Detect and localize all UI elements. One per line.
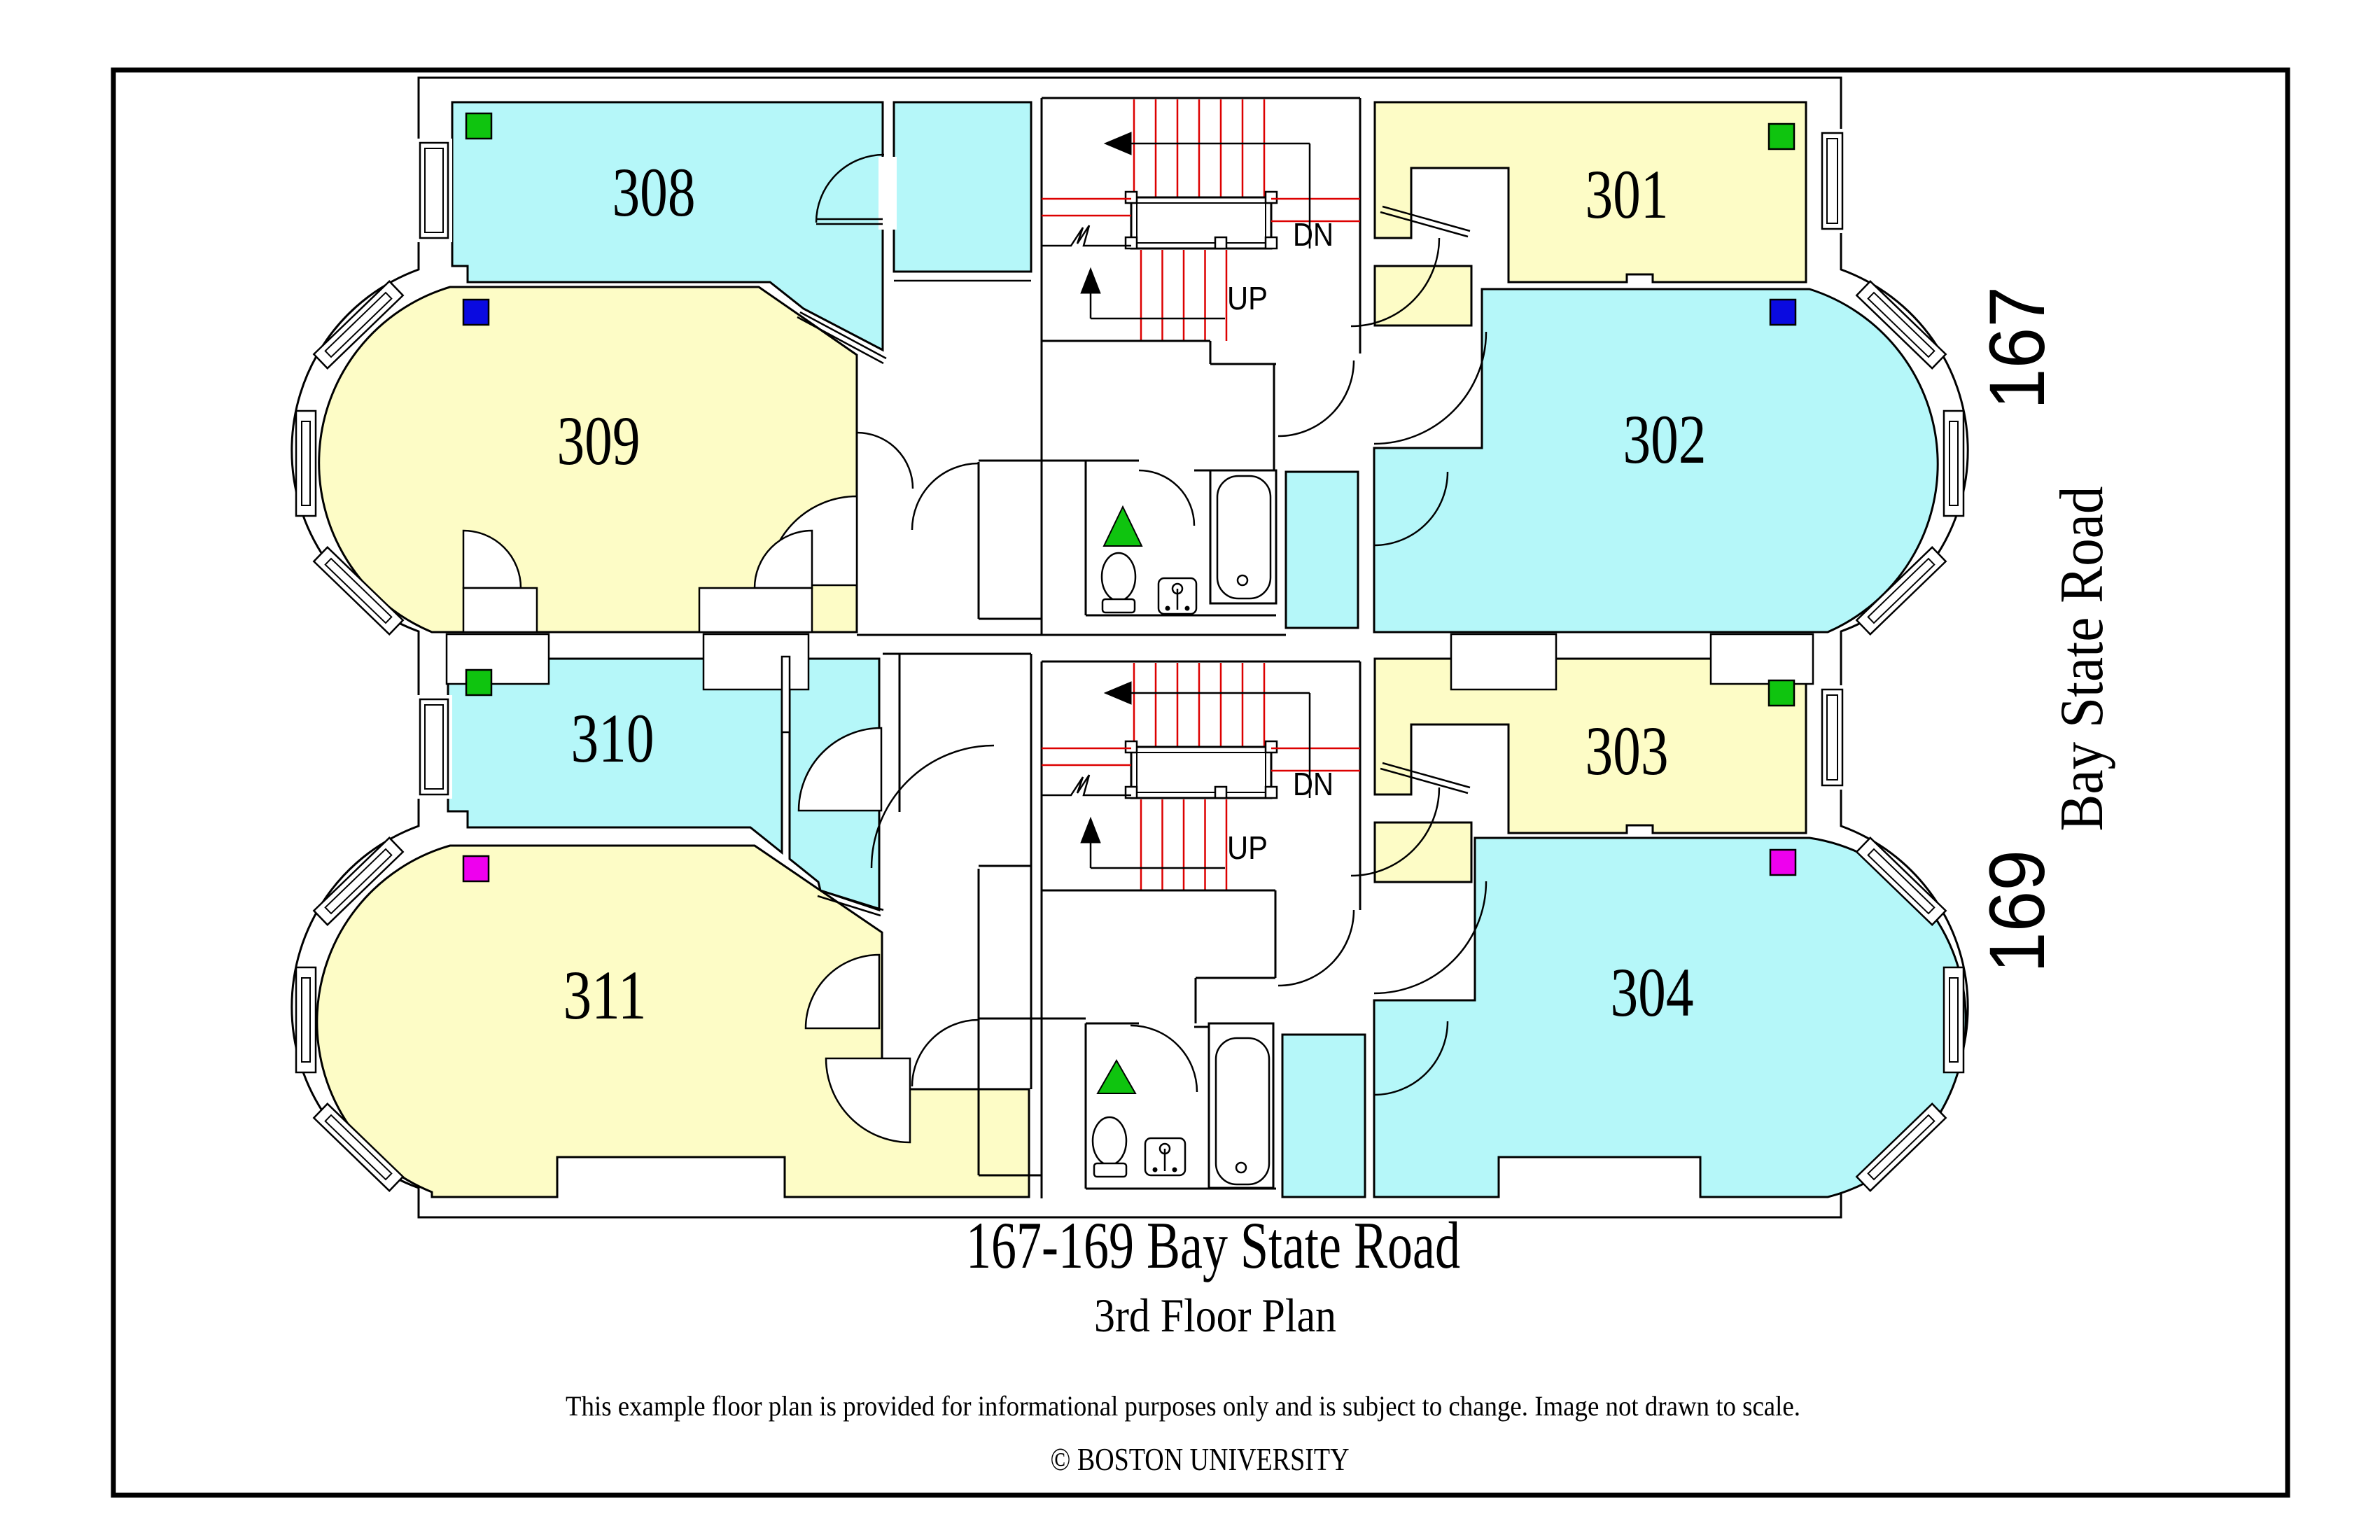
svg-text:UP: UP	[1227, 829, 1268, 866]
svg-text:UP: UP	[1227, 280, 1268, 316]
svg-text:310: 310	[571, 699, 654, 777]
svg-text:This example floor plan is pro: This example floor plan is provided for …	[566, 1390, 1800, 1422]
svg-text:308: 308	[612, 153, 696, 231]
svg-text:304: 304	[1611, 953, 1694, 1031]
svg-text:302: 302	[1623, 400, 1707, 478]
svg-text:311: 311	[563, 956, 647, 1034]
svg-text:167-169 Bay State Road: 167-169 Bay State Road	[966, 1208, 1460, 1282]
svg-text:303: 303	[1585, 712, 1669, 790]
svg-text:DN: DN	[1293, 766, 1333, 802]
svg-text:169: 169	[1973, 850, 2061, 973]
svg-text:Bay State Road: Bay State Road	[2048, 486, 2116, 832]
svg-text:© BOSTON UNIVERSITY: © BOSTON UNIVERSITY	[1051, 1441, 1350, 1477]
svg-text:3rd Floor Plan: 3rd Floor Plan	[1094, 1289, 1336, 1342]
svg-text:301: 301	[1585, 155, 1669, 233]
svg-text:167: 167	[1973, 286, 2061, 409]
svg-text:DN: DN	[1293, 216, 1333, 253]
svg-text:309: 309	[557, 402, 640, 479]
